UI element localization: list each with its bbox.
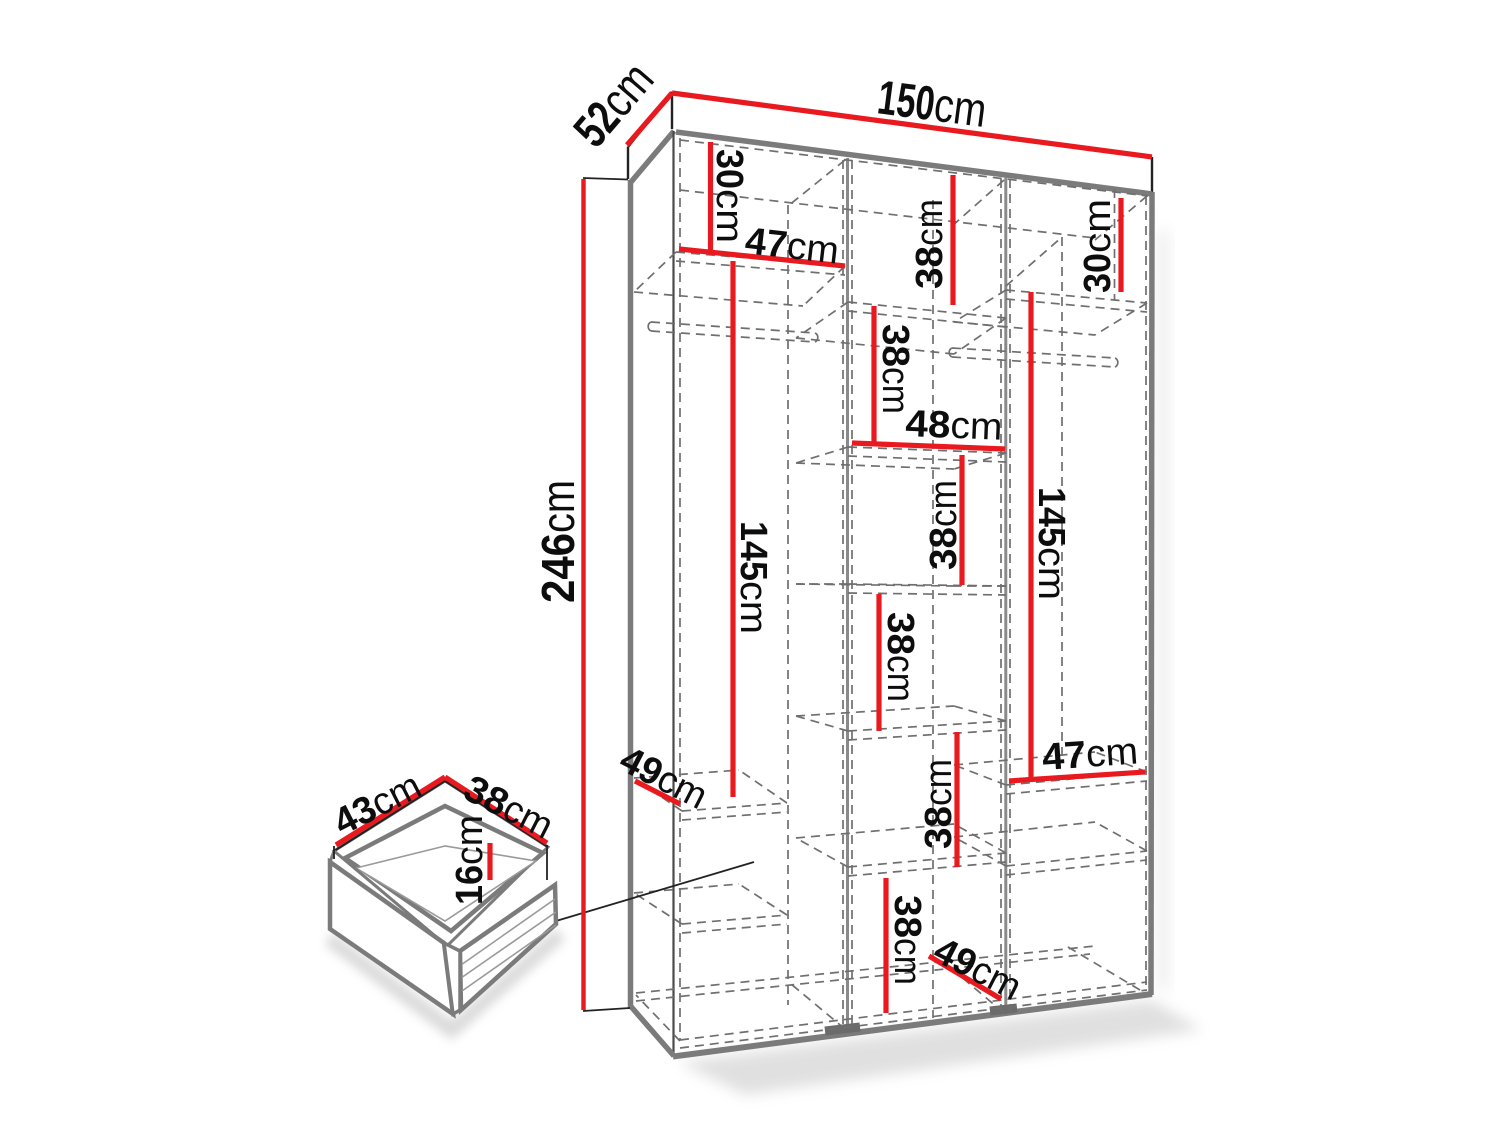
svg-text:145cm: 145cm — [732, 521, 774, 634]
svg-text:38cm: 38cm — [909, 199, 951, 289]
svg-text:16cm: 16cm — [449, 815, 491, 905]
svg-text:47cm: 47cm — [1041, 730, 1140, 779]
svg-text:48cm: 48cm — [905, 403, 1004, 449]
svg-text:145cm: 145cm — [1030, 487, 1072, 600]
svg-text:38cm: 38cm — [923, 480, 965, 570]
svg-text:30cm: 30cm — [708, 149, 750, 243]
svg-text:38cm: 38cm — [886, 895, 928, 985]
svg-text:246cm: 246cm — [532, 480, 584, 603]
svg-text:30cm: 30cm — [1077, 199, 1119, 293]
svg-text:38cm: 38cm — [918, 759, 960, 849]
svg-text:38cm: 38cm — [874, 324, 916, 414]
svg-text:38cm: 38cm — [879, 612, 921, 702]
